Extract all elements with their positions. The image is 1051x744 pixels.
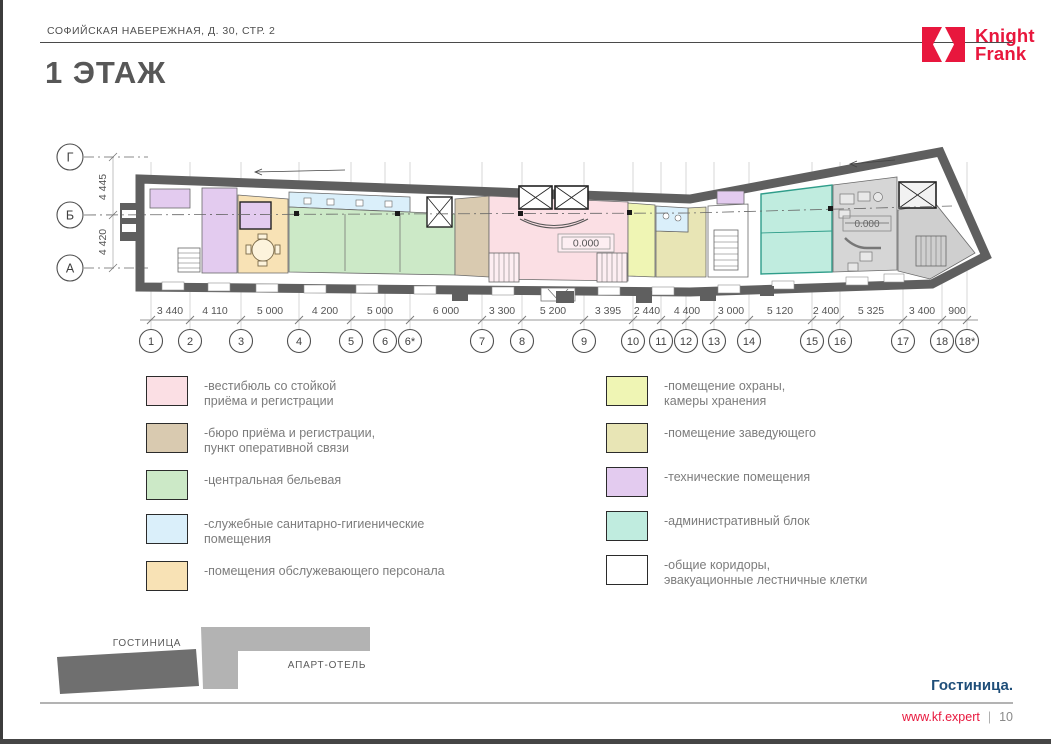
stair-right-room: [916, 236, 946, 266]
dim-label: 2 440: [634, 305, 660, 317]
svg-text:12: 12: [680, 336, 692, 348]
svg-text:1: 1: [148, 336, 154, 348]
legend-label: -служебные санитарно-гигиеническиепомеще…: [204, 514, 424, 547]
project-name: Гостиница.: [931, 677, 1013, 694]
level-mark-lobby-text: 0.000: [573, 238, 599, 250]
dim-label: 3 395: [595, 305, 621, 317]
svg-text:15: 15: [806, 336, 818, 348]
svg-text:Г: Г: [67, 151, 74, 165]
key-plan-apart-shape: [201, 627, 370, 689]
svg-text:4: 4: [296, 336, 302, 348]
svg-text:6*: 6*: [405, 336, 416, 348]
legend-swatch: [606, 511, 648, 541]
key-plan-hotel-shape: [57, 649, 199, 694]
stair-lobby-right: [597, 253, 627, 282]
column-bubble: 6: [374, 330, 397, 353]
dim-label: 4 400: [674, 305, 700, 317]
column-bubble: 8: [511, 330, 534, 353]
dim-label: 5 000: [257, 305, 283, 317]
website-link[interactable]: www.kf.expert: [902, 710, 980, 724]
room-admin: [761, 185, 832, 274]
dim-label: 6 000: [433, 305, 459, 317]
stair-lobby-left: [489, 253, 519, 282]
dim-label: 3 440: [157, 305, 183, 317]
legend-label: -помещение заведующего: [664, 423, 816, 453]
room-bureau: [455, 196, 489, 277]
dim-label: 3 400: [909, 305, 935, 317]
legend-label: -центральная бельевая: [204, 470, 341, 500]
column-bubble: 1: [140, 330, 163, 353]
legend-swatch: [606, 423, 648, 453]
row-dim-label: 4 420: [97, 229, 109, 255]
svg-text:13: 13: [708, 336, 720, 348]
column-bubble: 5: [340, 330, 363, 353]
legend-item-corridors: -общие коридоры,эвакуационные лестничные…: [606, 555, 867, 588]
legend-item-manager: -помещение заведующего: [606, 423, 867, 453]
svg-text:14: 14: [743, 336, 755, 348]
row-dim-label: 4 445: [97, 174, 109, 200]
row-bubble: Б: [57, 202, 83, 228]
legend-right-column: -помещение охраны,камеры хранения -помещ…: [606, 376, 867, 602]
column-bubble: 13: [703, 330, 726, 353]
dim-label: 5 200: [540, 305, 566, 317]
legend-item-sanitary: -служебные санитарно-гигиеническиепомеще…: [146, 514, 445, 547]
floor-plan-drawing: 0.000 0.000 3 440 4 110 5 000 4 200: [0, 0, 1051, 744]
legend-label: -общие коридоры,эвакуационные лестничные…: [664, 555, 867, 588]
dim-label: 2 400: [813, 305, 839, 317]
legend-item-security: -помещение охраны,камеры хранения: [606, 376, 867, 409]
legend-label: -бюро приёма и регистрации,пункт операти…: [204, 423, 375, 456]
dim-label: 3 000: [718, 305, 744, 317]
legend-label: -технические помещения: [664, 467, 810, 497]
column-bubble: 2: [179, 330, 202, 353]
room-technical-1: [150, 189, 190, 208]
svg-text:18: 18: [936, 336, 948, 348]
svg-text:Б: Б: [66, 209, 74, 223]
legend-label: -помещение охраны,камеры хранения: [664, 376, 785, 409]
dim-label: 4 110: [202, 305, 228, 317]
room-sanitary-2: [656, 206, 688, 232]
elevator-right-icon: [899, 182, 936, 208]
legend-swatch: [146, 376, 188, 406]
room-technical-3: [240, 202, 271, 229]
column-bubble: 16: [829, 330, 852, 353]
dim-label: 3 300: [489, 305, 515, 317]
legend-item-technical: -технические помещения: [606, 467, 867, 497]
dim-label: 4 200: [312, 305, 338, 317]
svg-text:5: 5: [348, 336, 354, 348]
svg-text:2: 2: [187, 336, 193, 348]
column-bubble: 4: [288, 330, 311, 353]
column-bubble: 6*: [399, 330, 422, 353]
level-mark-right-text: 0.000: [854, 219, 879, 230]
legend-swatch: [606, 376, 648, 406]
column-bubble: 3: [230, 330, 253, 353]
key-plan-hotel-label: ГОСТИНИЦА: [113, 638, 182, 649]
svg-text:18*: 18*: [959, 336, 976, 348]
svg-text:10: 10: [627, 336, 639, 348]
legend-swatch: [606, 555, 648, 585]
svg-text:17: 17: [897, 336, 909, 348]
column-bubble: 11: [650, 330, 673, 353]
svg-text:7: 7: [479, 336, 485, 348]
key-plan: ГОСТИНИЦА АПАРТ-ОТЕЛЬ: [57, 627, 370, 694]
dim-label: 5 325: [858, 305, 884, 317]
legend-left-column: -вестибюль со стойкойприёма и регистраци…: [146, 376, 445, 605]
footer: www.kf.expert | 10: [902, 710, 1013, 724]
key-plan-apart-label: АПАРТ-ОТЕЛЬ: [288, 660, 367, 671]
dimension-line: [140, 316, 978, 324]
svg-text:3: 3: [238, 336, 244, 348]
room-technical-4: [717, 191, 744, 204]
legend-item-staff: -помещения обслужевающего персонала: [146, 561, 445, 591]
column-bubbles: 1 2 3 4 5 6 6* 7 8 9 10 11 12 13 14 15 1…: [140, 330, 979, 353]
page-number: 10: [999, 710, 1013, 724]
footer-separator: |: [988, 710, 991, 724]
legend-item-admin: -административный блок: [606, 511, 867, 541]
legend-item-lobby: -вестибюль со стойкойприёма и регистраци…: [146, 376, 445, 409]
column-bubble: 15: [801, 330, 824, 353]
svg-text:8: 8: [519, 336, 525, 348]
svg-text:6: 6: [382, 336, 388, 348]
legend-label: -помещения обслужевающего персонала: [204, 561, 445, 591]
legend-label: -административный блок: [664, 511, 810, 541]
legend-swatch: [146, 561, 188, 591]
slide-page: СОФИЙСКАЯ НАБЕРЕЖНАЯ, Д. 30, СТР. 2 1 ЭТ…: [0, 0, 1051, 744]
level-mark-lobby: 0.000: [558, 234, 614, 252]
dimension-labels: 3 440 4 110 5 000 4 200 5 000 6 000 3 30…: [157, 305, 966, 317]
dim-label: 5 120: [767, 305, 793, 317]
dim-label: 5 000: [367, 305, 393, 317]
row-bubble: Г: [57, 144, 83, 170]
column-bubble: 7: [471, 330, 494, 353]
stair-white-room: [714, 230, 738, 270]
stair-left-room: [178, 248, 200, 272]
room-technical-2: [202, 188, 237, 273]
dim-label: 900: [948, 305, 966, 317]
legend-swatch: [146, 423, 188, 453]
svg-text:11: 11: [655, 336, 666, 348]
column-bubble: 10: [622, 330, 645, 353]
column-bubble: 18*: [956, 330, 979, 353]
column-bubble: 14: [738, 330, 761, 353]
column-bubble: 12: [675, 330, 698, 353]
legend-swatch: [146, 514, 188, 544]
column-bubble: 9: [573, 330, 596, 353]
legend-swatch: [146, 470, 188, 500]
column-bubble: 18: [931, 330, 954, 353]
legend-item-linen: -центральная бельевая: [146, 470, 445, 500]
row-bubbles: Г Б А 4 445 4 420: [57, 144, 117, 281]
footer-divider: [40, 702, 1013, 704]
column-bubble: 17: [892, 330, 915, 353]
row-bubble: А: [57, 255, 83, 281]
svg-text:9: 9: [581, 336, 587, 348]
legend-label: -вестибюль со стойкойприёма и регистраци…: [204, 376, 336, 409]
legend-swatch: [606, 467, 648, 497]
legend-item-bureau: -бюро приёма и регистрации,пункт операти…: [146, 423, 445, 456]
room-security: [628, 203, 655, 277]
svg-text:16: 16: [834, 336, 846, 348]
svg-text:А: А: [66, 262, 75, 276]
elevator-icon: [427, 197, 452, 227]
